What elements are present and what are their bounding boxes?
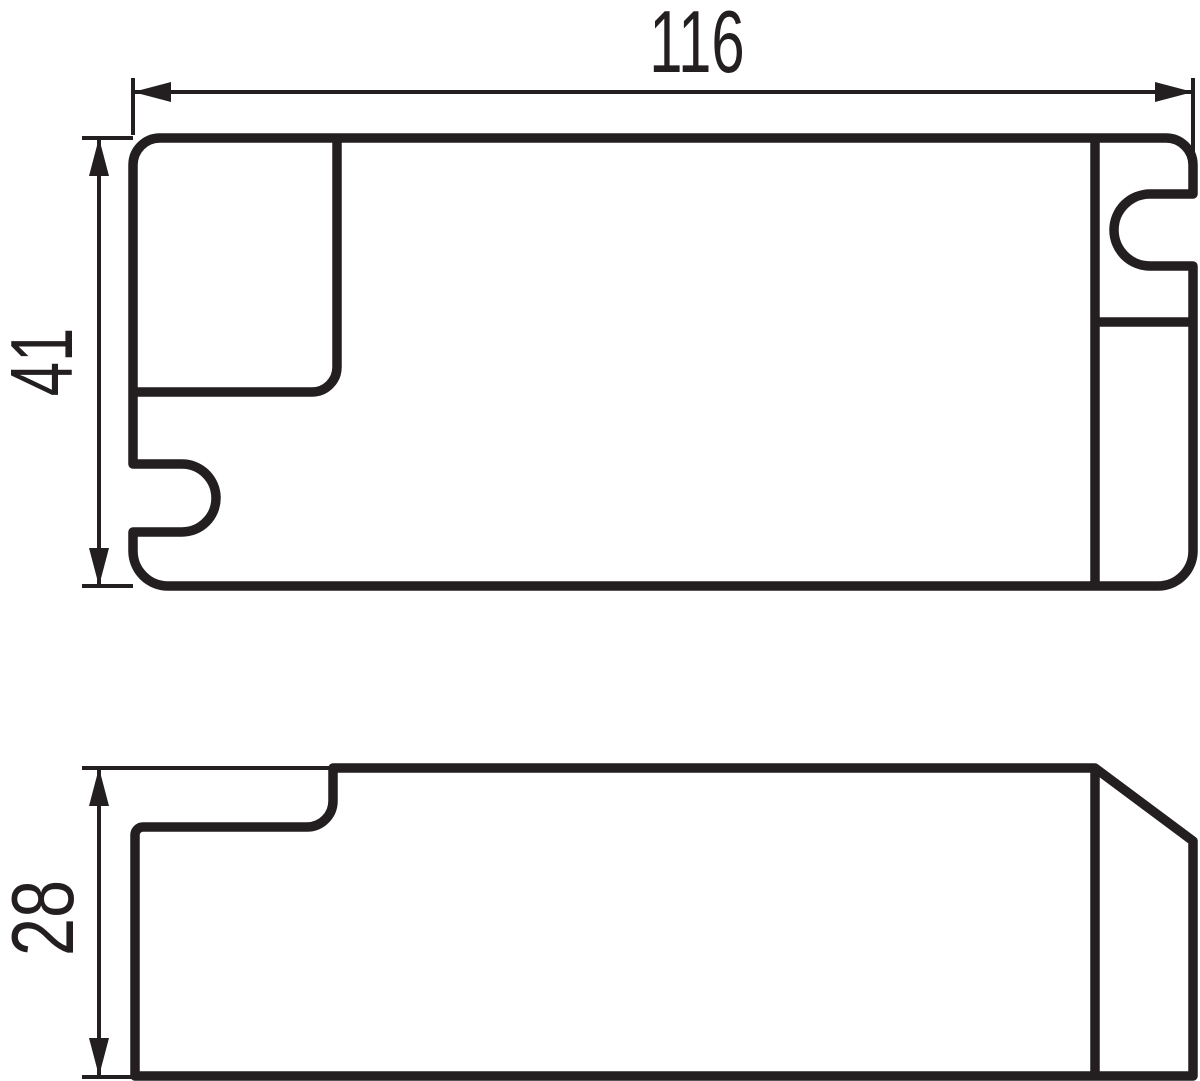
side-view-outline: [135, 768, 1193, 1076]
terminal-compartment-line: [133, 138, 337, 392]
dim-depth-arrow-top: [89, 768, 109, 806]
top-view: [133, 138, 1193, 586]
drawing-canvas: 116 41 28: [0, 0, 1200, 1081]
side-view: [135, 768, 1193, 1076]
dimension-height: 41: [0, 138, 133, 586]
dim-depth-label: 28: [0, 880, 92, 956]
dim-height-arrow-bottom: [89, 548, 109, 586]
dim-depth-arrow-bottom: [89, 1038, 109, 1076]
dimension-depth: 28: [0, 768, 333, 1077]
dimension-drawing: 116 41 28: [0, 0, 1200, 1081]
dim-width-arrow-left: [133, 82, 171, 102]
top-view-outline: [133, 138, 1193, 586]
dim-height-label: 41: [0, 328, 92, 397]
dim-width-arrow-right: [1155, 82, 1193, 102]
dim-width-label: 116: [649, 0, 744, 91]
dim-height-arrow-top: [89, 138, 109, 176]
